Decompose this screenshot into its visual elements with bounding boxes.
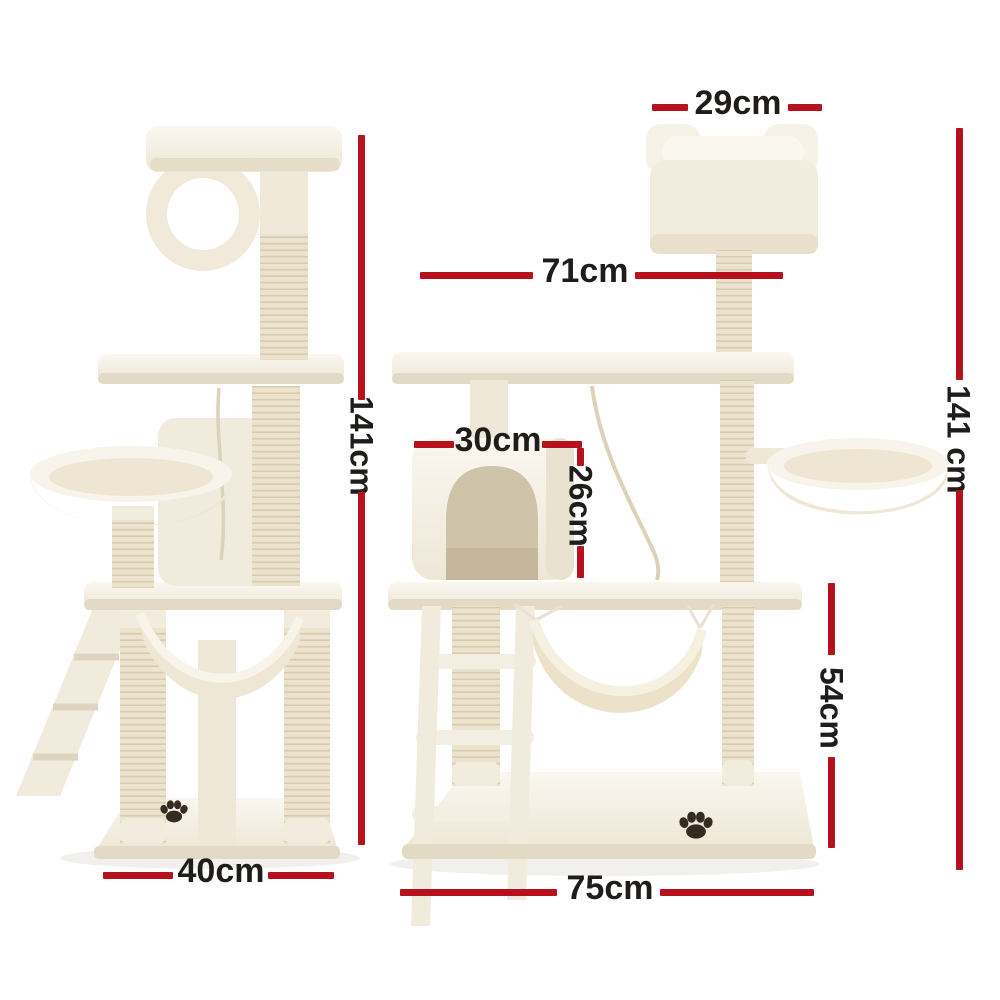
- dim-141cm-side-label: 141cm: [341, 398, 381, 494]
- dim-75cm-line-left: [400, 889, 557, 896]
- dim-40cm-label: 40cm: [175, 854, 267, 890]
- basket-front: [767, 438, 949, 514]
- cat-tree-side-view: [16, 126, 360, 869]
- dim-54cm-line-bottom: [828, 757, 835, 848]
- dim-71cm-line-right: [635, 272, 783, 279]
- dim-30cm-line-right: [542, 441, 582, 448]
- dim-26cm-label: 26cm: [559, 464, 601, 548]
- cat-tree-front-view: [388, 124, 949, 926]
- dim-40cm-line-right: [268, 872, 334, 879]
- dim-141cm-side-line-top: [358, 135, 365, 400]
- dim-29cm-line-right: [788, 104, 822, 111]
- dim-141cm-side-line-bottom: [358, 492, 365, 845]
- ring-perch: [146, 157, 260, 271]
- dim-75cm-line-right: [660, 889, 814, 896]
- dim-30cm-label: 30cm: [454, 423, 542, 459]
- dim-141cm-front-label: 141 cm: [938, 388, 978, 490]
- dim-29cm-label: 29cm: [686, 86, 790, 122]
- toy-rope-front: [592, 386, 658, 580]
- dim-30cm-line-left: [414, 441, 454, 448]
- dim-141cm-front-line-bottom: [956, 490, 963, 870]
- cat-tree-illustration: [0, 0, 1000, 1000]
- top-perch-box: [646, 124, 818, 254]
- dim-54cm-label: 54cm: [810, 662, 852, 754]
- dim-71cm-label: 71cm: [536, 254, 634, 290]
- dim-71cm-line-left: [420, 272, 533, 279]
- dim-54cm-line-top: [828, 583, 835, 655]
- hammock-front: [533, 620, 703, 713]
- dim-141cm-front-line-top: [956, 128, 963, 380]
- dim-40cm-line-left: [103, 872, 173, 879]
- condo-house: [412, 438, 574, 580]
- dim-26cm-line-bottom: [577, 546, 584, 578]
- cat-tree-dimension-diagram: 29cm 71cm 141cm 141 cm 30cm 26cm 54cm 40…: [0, 0, 1000, 1000]
- dim-29cm-line-left: [652, 104, 688, 111]
- dim-75cm-label: 75cm: [560, 871, 660, 907]
